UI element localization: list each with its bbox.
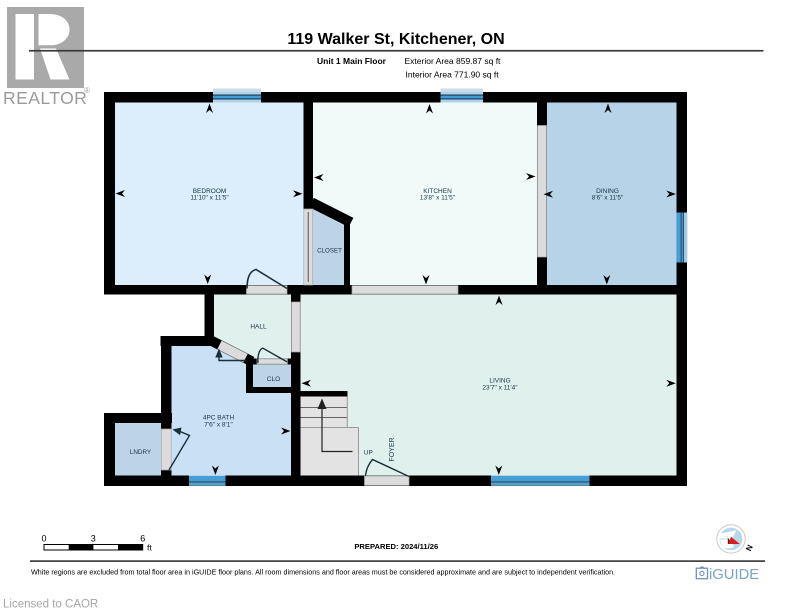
svg-text:ft: ft	[147, 543, 152, 553]
svg-text:White regions are excluded fro: White regions are excluded from total fl…	[31, 568, 615, 577]
svg-text:FOYER: FOYER	[389, 437, 396, 461]
svg-text:11'10" x 11'5": 11'10" x 11'5"	[190, 195, 229, 202]
svg-text:119 Walker St, Kitchener, ON: 119 Walker St, Kitchener, ON	[287, 31, 504, 48]
svg-text:LIVING: LIVING	[489, 377, 510, 384]
svg-text:HALL: HALL	[250, 324, 267, 331]
svg-text:®: ®	[84, 86, 90, 95]
svg-text:Exterior Area 859.87 sq ft: Exterior Area 859.87 sq ft	[405, 56, 502, 66]
svg-text:LNDRY: LNDRY	[130, 449, 152, 456]
svg-text:6: 6	[140, 534, 145, 544]
svg-text:CLO: CLO	[267, 376, 281, 383]
svg-text:Interior Area 771.90 sq ft: Interior Area 771.90 sq ft	[406, 69, 500, 79]
svg-text:Licensed to CAOR: Licensed to CAOR	[3, 599, 98, 611]
svg-text:7'6" x 8'1": 7'6" x 8'1"	[204, 422, 233, 429]
svg-text:0: 0	[41, 534, 46, 544]
svg-text:UP: UP	[364, 450, 373, 457]
svg-text:REALTOR: REALTOR	[3, 88, 87, 108]
svg-text:4PC BATH: 4PC BATH	[203, 415, 235, 422]
svg-text:iGUIDE: iGUIDE	[709, 567, 759, 583]
svg-text:PREPARED: 2024/11/26: PREPARED: 2024/11/26	[354, 542, 438, 551]
svg-text:8'6" x 11'5": 8'6" x 11'5"	[592, 195, 624, 202]
svg-text:13'8" x 11'5": 13'8" x 11'5"	[420, 195, 456, 202]
svg-text:23'7" x 11'4": 23'7" x 11'4"	[482, 384, 518, 391]
svg-text:CLOSET: CLOSET	[317, 248, 342, 255]
svg-text:Unit 1 Main Floor: Unit 1 Main Floor	[317, 56, 387, 66]
svg-text:3: 3	[91, 534, 96, 544]
